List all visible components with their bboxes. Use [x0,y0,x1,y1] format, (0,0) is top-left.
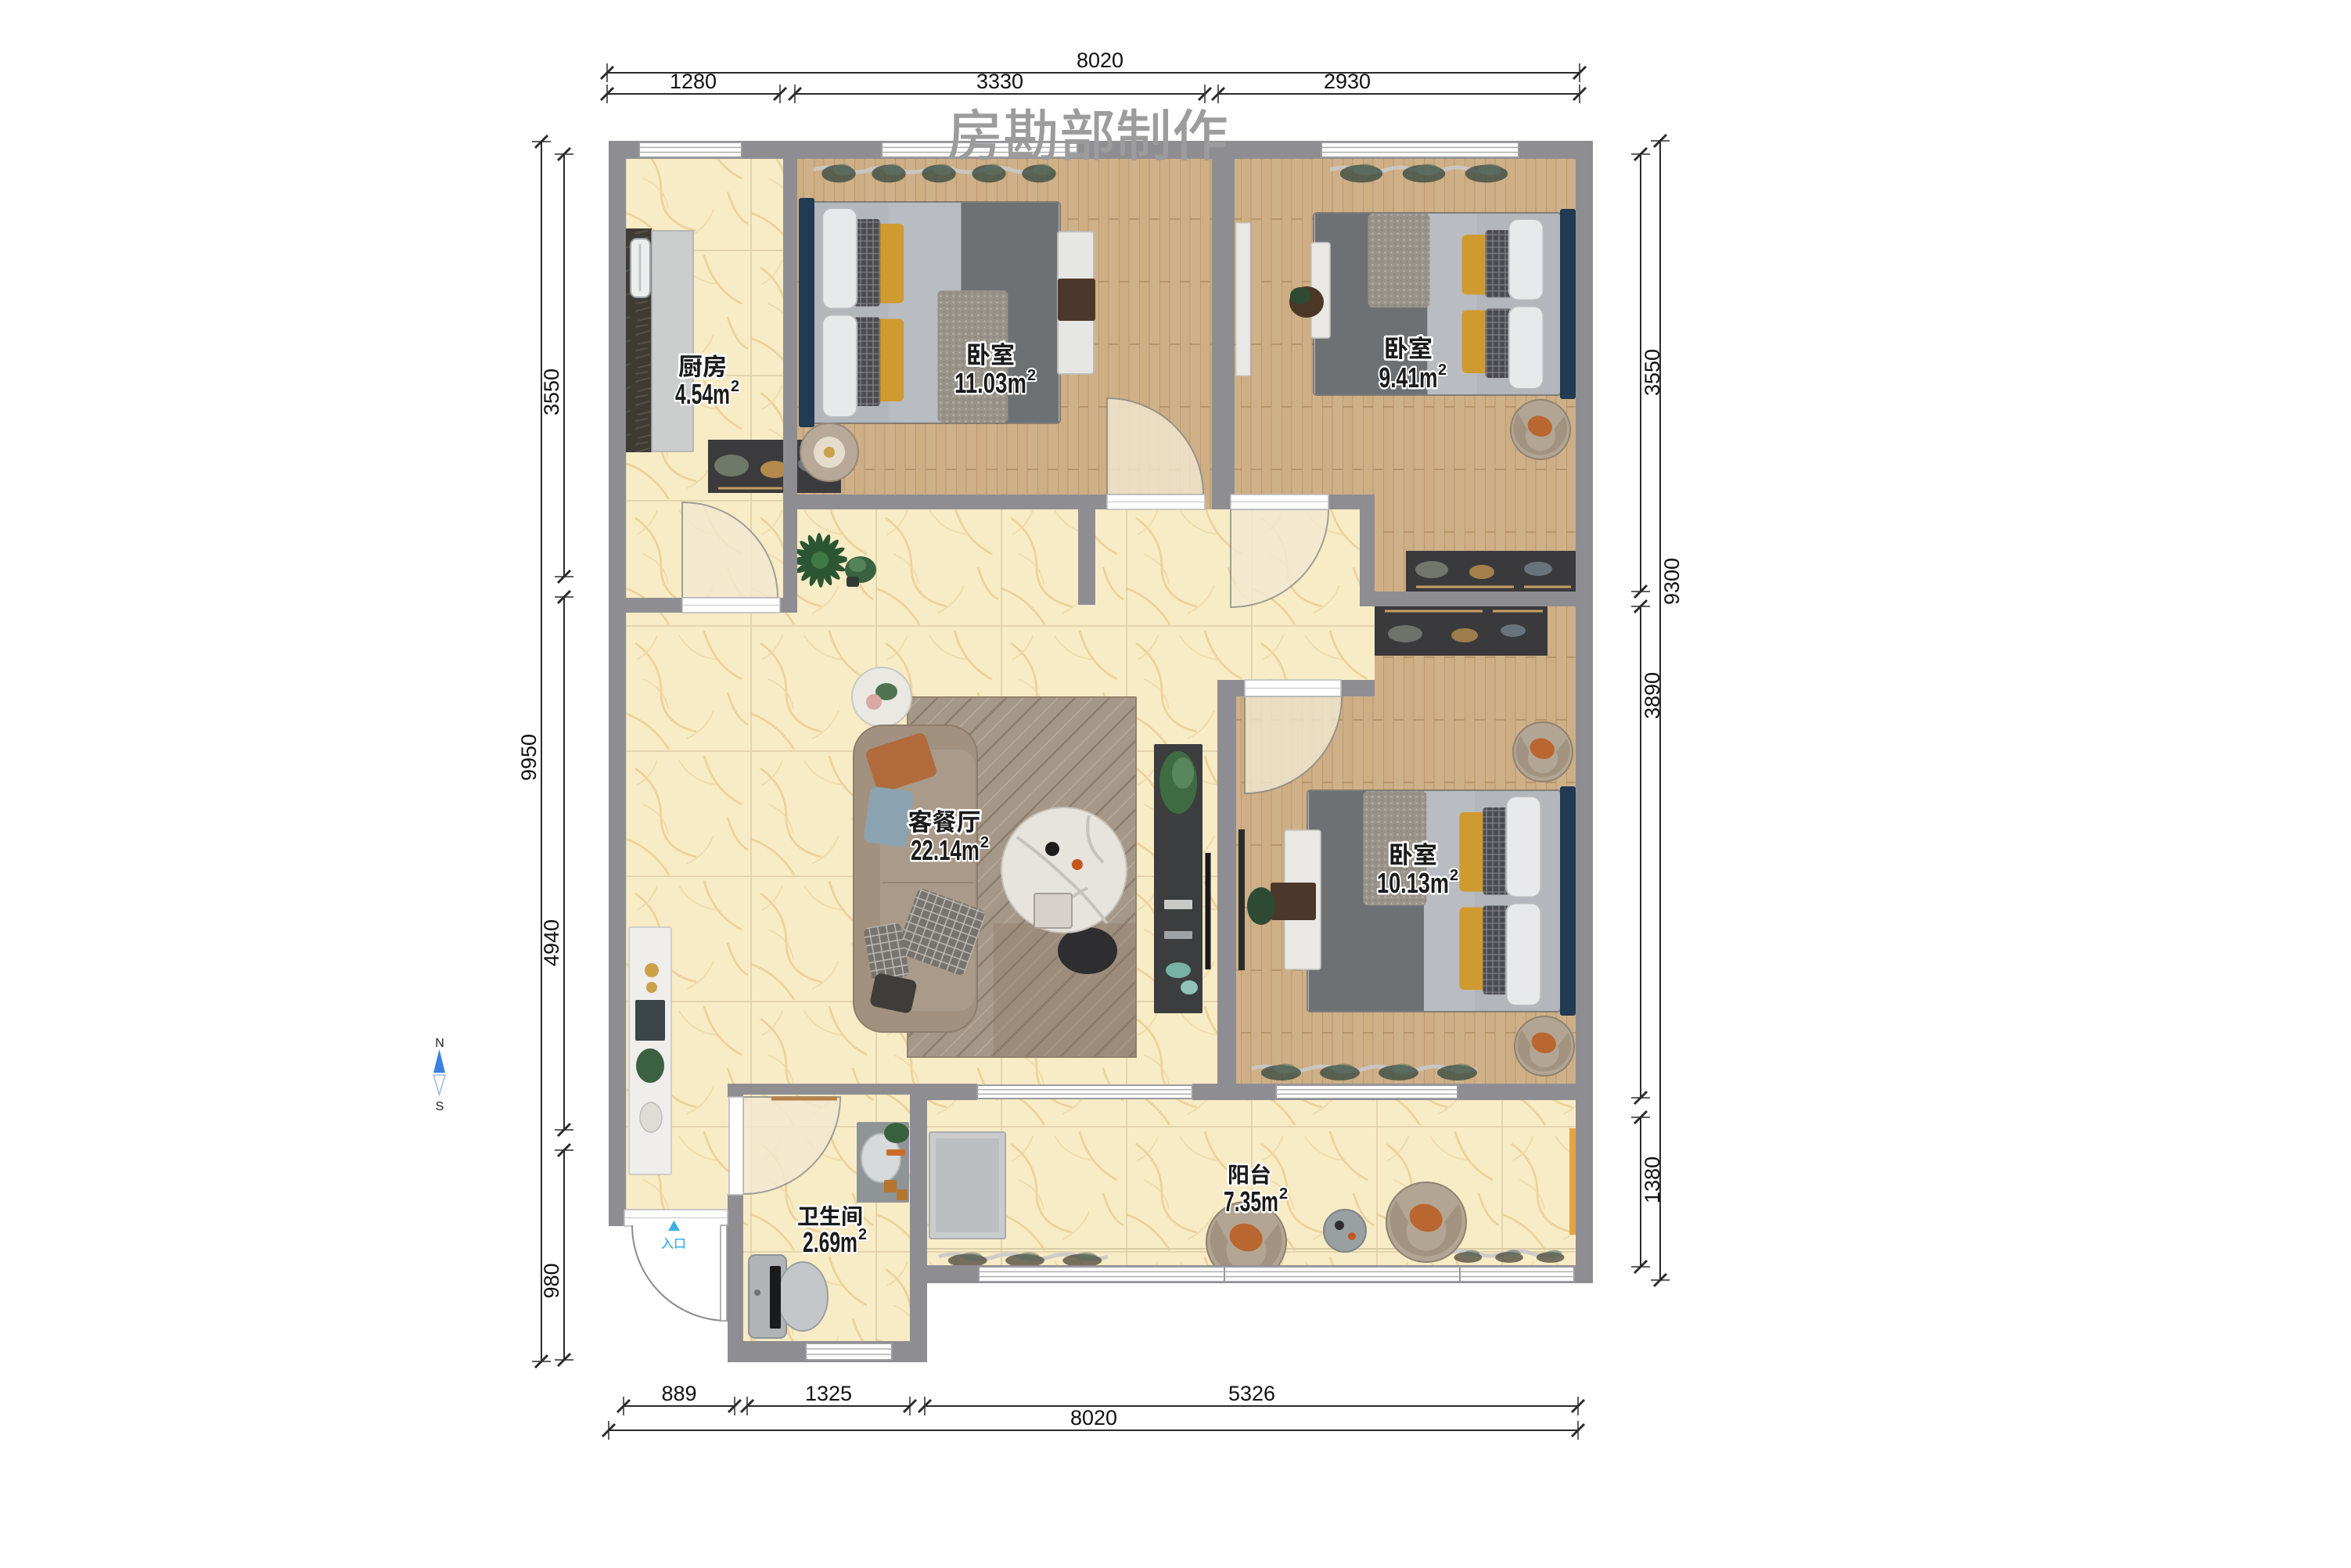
svg-text:2: 2 [731,378,739,395]
svg-text:889: 889 [661,1382,696,1405]
svg-text:7.35m: 7.35m [1224,1185,1278,1217]
svg-text:N: N [435,1037,444,1050]
svg-text:4.54m: 4.54m [675,378,730,410]
svg-text:11.03m: 11.03m [954,367,1026,399]
svg-text:4940: 4940 [540,919,563,966]
svg-text:2: 2 [858,1226,867,1243]
svg-text:1280: 1280 [670,70,717,93]
svg-text:3550: 3550 [540,369,563,415]
svg-text:9.41m: 9.41m [1379,361,1438,394]
svg-text:2: 2 [1450,867,1458,884]
svg-text:2930: 2930 [1324,70,1371,93]
svg-text:2.69m: 2.69m [803,1226,857,1258]
svg-text:10.13m: 10.13m [1377,867,1449,899]
svg-text:8020: 8020 [1077,49,1123,72]
svg-text:9950: 9950 [517,734,541,781]
svg-text:3330: 3330 [976,70,1023,93]
svg-text:980: 980 [540,1263,563,1298]
svg-text:2: 2 [980,834,989,851]
svg-text:8020: 8020 [1070,1406,1117,1430]
svg-text:2: 2 [1027,367,1036,384]
svg-text:2: 2 [1279,1185,1288,1203]
svg-text:1325: 1325 [805,1382,852,1405]
svg-text:5326: 5326 [1228,1382,1275,1405]
svg-text:9300: 9300 [1660,558,1684,605]
svg-text:22.14m: 22.14m [911,834,980,866]
svg-text:2: 2 [1438,361,1447,379]
svg-text:S: S [436,1100,444,1113]
